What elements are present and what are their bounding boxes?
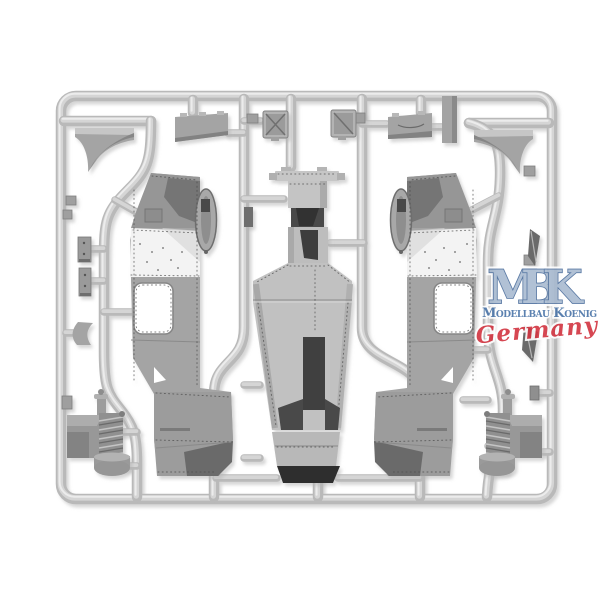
roof-hatch-diagonal: [331, 110, 356, 140]
bracket-hook: [73, 322, 93, 345]
vision-plate-lower: [79, 268, 91, 296]
product-photo: MBK MBK Modellbau Koenig Modellbau Koeni…: [0, 0, 600, 600]
roof-hatch-crossed: [263, 111, 288, 141]
stowage-panel-left: [175, 111, 228, 142]
sprue-photo-canvas: MBK MBK Modellbau Koenig Modellbau Koeni…: [0, 0, 600, 600]
vision-plate-upper: [78, 237, 91, 262]
hull-side-panel-left: [130, 173, 233, 476]
hull-side-panel-right: [374, 173, 477, 476]
runner-vertical-center: [290, 97, 291, 167]
stub-top-left: [192, 98, 193, 113]
runner-horizontal-left: [63, 119, 151, 121]
mudguard-triangle-left: [75, 128, 134, 172]
watermark: MBK MBK Modellbau Koenig Modellbau Koeni…: [475, 260, 600, 349]
stub-top-right: [420, 98, 421, 113]
stowage-panel-right: [388, 111, 432, 139]
small-fitting: [244, 207, 253, 227]
hull-center-section: [253, 167, 352, 483]
small-block-right-rail: [530, 386, 539, 400]
filler-block: [442, 96, 457, 143]
